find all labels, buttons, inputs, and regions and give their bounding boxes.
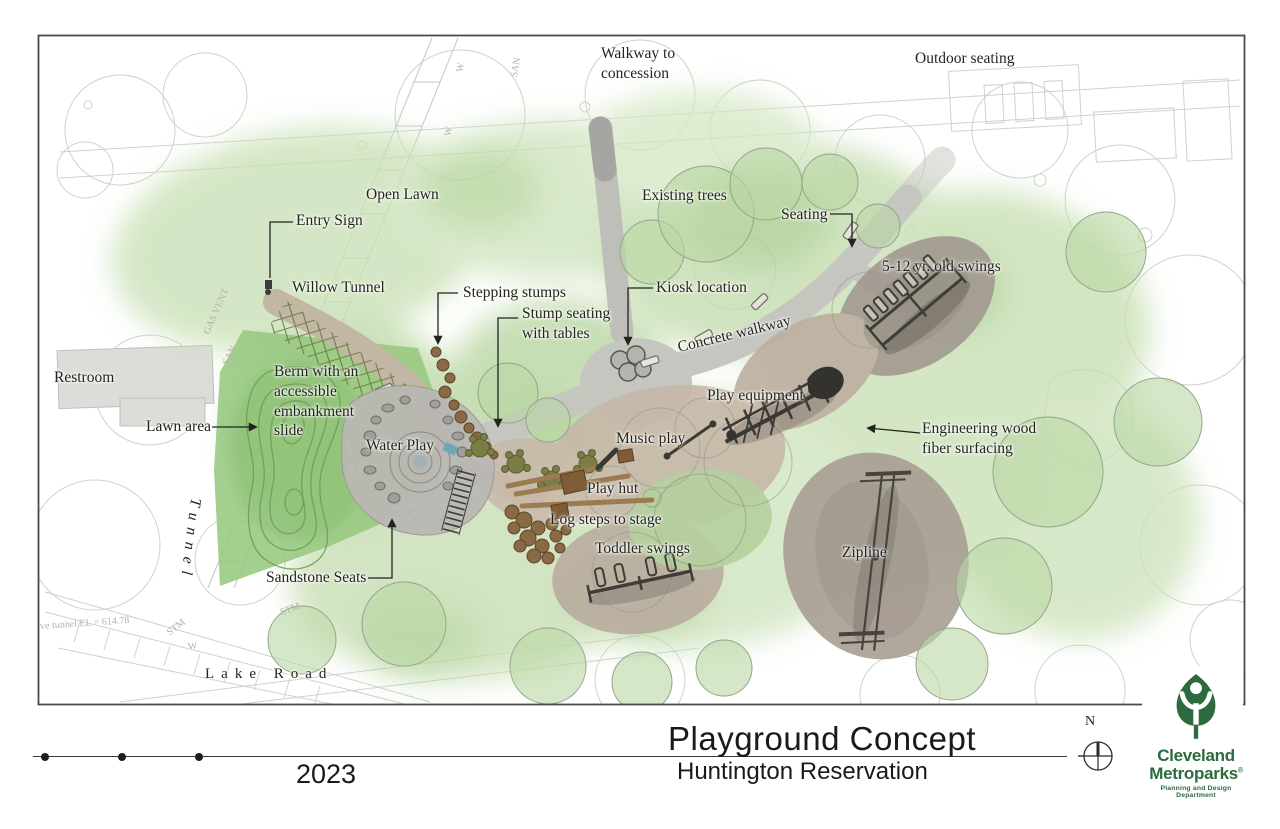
- logo-name-line1: Cleveland: [1144, 747, 1248, 765]
- survey-w-1: W: [187, 640, 198, 652]
- scale-dot-1: [41, 753, 49, 761]
- label-stump-seating: Stump seating with tables: [522, 304, 610, 344]
- north-label: N: [1085, 714, 1095, 730]
- site-plan-artwork: [0, 0, 1280, 829]
- label-outdoor-seating: Outdoor seating: [915, 49, 1014, 69]
- page-title: Playground Concept: [668, 722, 976, 755]
- label-kiosk-location: Kiosk location: [656, 278, 747, 298]
- scale-dot-2: [118, 753, 126, 761]
- scale-dot-3: [195, 753, 203, 761]
- label-restroom: Restroom: [54, 368, 114, 388]
- label-seating: Seating: [781, 205, 828, 225]
- label-open-lawn: Open Lawn: [366, 185, 439, 205]
- label-existing-trees: Existing trees: [642, 186, 727, 206]
- label-stepping-stumps: Stepping stumps: [463, 283, 566, 303]
- label-5-12-swings: 5-12 yr. old swings: [882, 257, 1001, 277]
- label-berm-slide: Berm with an accessible embankment slide: [274, 362, 358, 441]
- playground-concept-plan-sheet: Walkway to concession Outdoor seating Op…: [0, 0, 1280, 829]
- label-entry-sign: Entry Sign: [296, 211, 363, 231]
- cleveland-metroparks-logo: Cleveland Metroparks® Planning and Desig…: [1144, 672, 1248, 799]
- logo-registered-mark: ®: [1238, 767, 1243, 774]
- label-lawn-area: Lawn area: [146, 417, 211, 437]
- label-play-equipment: Play equipment: [707, 386, 804, 406]
- label-lake-road: Lake Road: [205, 665, 333, 684]
- logo-name-line2: Metroparks®: [1144, 765, 1248, 783]
- metroparks-tree-icon: [1169, 672, 1223, 742]
- label-wood-fiber-surfacing: Engineering wood fiber surfacing: [922, 419, 1036, 459]
- label-play-hut: Play hut: [587, 479, 638, 499]
- play-hut-structure: [560, 470, 588, 495]
- label-zipline: Zipline: [842, 543, 887, 563]
- compass-icon: [1076, 734, 1120, 778]
- logo-department: Planning and Design Department: [1144, 785, 1248, 799]
- label-music-play: Music play: [616, 429, 685, 449]
- logo-name-line2-text: Metroparks: [1149, 764, 1238, 783]
- plan-year: 2023: [276, 759, 376, 790]
- page-subtitle: Huntington Reservation: [677, 760, 928, 784]
- label-water-play: Water Play: [366, 436, 434, 456]
- label-toddler-swings: Toddler swings: [595, 539, 690, 559]
- survey-w-3: W: [442, 126, 455, 138]
- label-log-steps: Log steps to stage: [550, 510, 662, 530]
- label-walkway-to-concession: Walkway to concession: [601, 44, 675, 84]
- label-sandstone-seats: Sandstone Seats: [266, 568, 366, 588]
- survey-w-2: W: [454, 62, 467, 74]
- label-willow-tunnel: Willow Tunnel: [292, 278, 385, 298]
